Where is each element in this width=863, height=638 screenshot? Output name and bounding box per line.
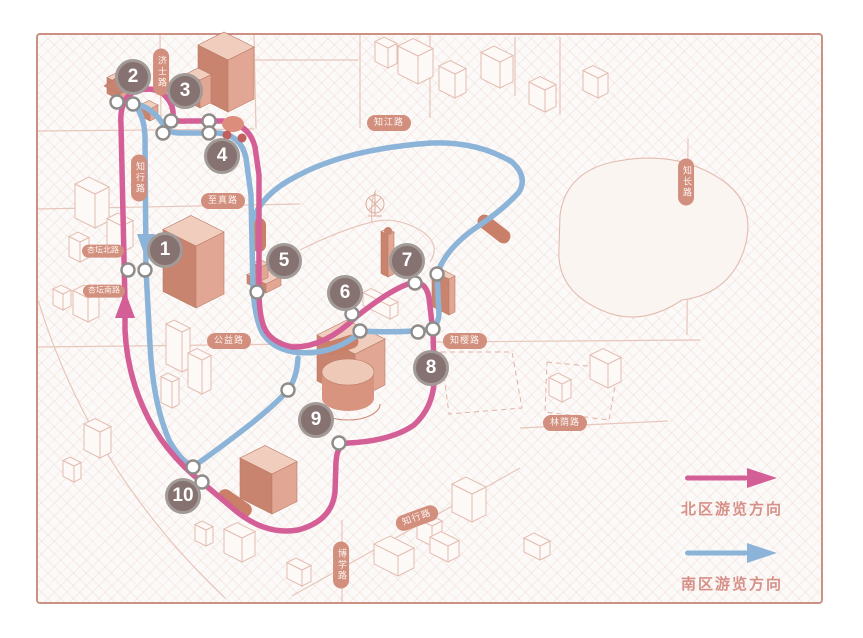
south-route-label: 南区游览方向	[681, 573, 811, 594]
campus-roads	[38, 35, 700, 602]
pond	[559, 158, 748, 317]
south-route-arrow-icon	[685, 543, 777, 563]
tour-routes	[115, 89, 522, 531]
north-route-label: 北区游览方向	[681, 498, 811, 519]
north-route-arrowhead	[115, 291, 135, 318]
monument-icon	[366, 192, 384, 216]
route-legend: 北区游览方向 南区游览方向	[681, 464, 811, 618]
north-route-arrow-icon	[685, 468, 777, 488]
south-route-arrowhead	[137, 234, 155, 259]
